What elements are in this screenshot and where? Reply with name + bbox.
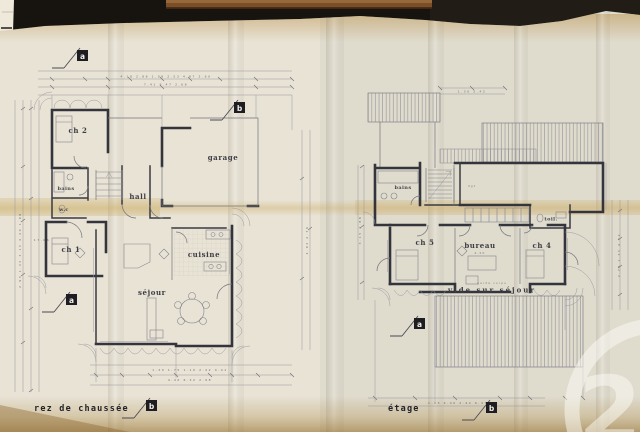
ground-floor-title: rez de chaussée <box>34 403 129 414</box>
svg-text:b: b <box>237 104 243 113</box>
room-label-ch5: ch 5 <box>415 238 434 247</box>
room-label-ch4: ch 4 <box>532 241 551 250</box>
photo-of-architectural-plan: 4.18 2.88 1.08 2.53 4.87 2.60 7.41 9.47 … <box>0 0 640 432</box>
watermark-21-text: 21 <box>578 357 640 432</box>
bureau-dim-label: 4.50 <box>474 251 485 255</box>
room-label-bains-upper: bains <box>394 185 411 191</box>
garde-corps-label: garde corps <box>477 281 507 285</box>
svg-text:b: b <box>489 404 495 413</box>
upper-right-dims: 2.76 1.35 4.12 <box>617 233 621 277</box>
upper-floor-title: étage <box>388 403 420 414</box>
svg-text:b: b <box>149 402 155 411</box>
room-label-dgt: dgt <box>468 184 476 188</box>
svg-text:a: a <box>417 320 422 329</box>
room-label-bureau: bureau <box>464 241 495 250</box>
upper-left-dims: 3.15 2.88 <box>358 216 362 245</box>
svg-text:a: a <box>80 52 85 61</box>
vide-sur-sejour-hatch <box>435 296 583 367</box>
ground-right-dims: 4.93 2.76 <box>305 226 309 255</box>
room-label-hall: hall <box>129 192 146 201</box>
room-label-wc: w.c <box>58 207 69 213</box>
room-label-ch1: ch 1 <box>61 245 80 254</box>
ground-bottom-dims-row2: 4.40 6.32 2.98 <box>168 378 212 382</box>
room-label-bains-ground: bains <box>57 186 74 192</box>
wood-strip <box>166 0 432 9</box>
ground-left-dims: 2.93 1.35 3.15 4.40 1.98 <box>18 212 22 288</box>
ground-left-total-dim: 17.06 <box>34 238 51 242</box>
upper-top-dims: 1.30 2.42 <box>458 90 487 94</box>
room-label-cuisine: cuisine <box>188 250 220 259</box>
ground-top-dims-row1: 4.18 2.88 1.08 2.53 4.87 2.60 <box>120 75 211 79</box>
room-label-vide-sur-sejour: vide sur séjour <box>447 286 536 295</box>
room-label-garage: garage <box>208 153 239 162</box>
upper-bottom-dims: 1.05 4.40 2.42 6.47 <box>428 401 488 405</box>
svg-text:a: a <box>69 296 74 305</box>
room-label-toil: toil. <box>544 217 557 223</box>
floor-plan-photo: 4.18 2.88 1.08 2.53 4.87 2.60 7.41 9.47 … <box>0 0 640 432</box>
ground-top-dims-row2: 7.41 9.47 2.68 <box>144 83 188 87</box>
room-label-sejour: séjour <box>138 288 166 297</box>
ground-bottom-dims-row1: 1.30 1.75 1.10 2.42 4.41 <box>152 368 228 372</box>
room-label-ch2: ch 2 <box>68 126 87 135</box>
